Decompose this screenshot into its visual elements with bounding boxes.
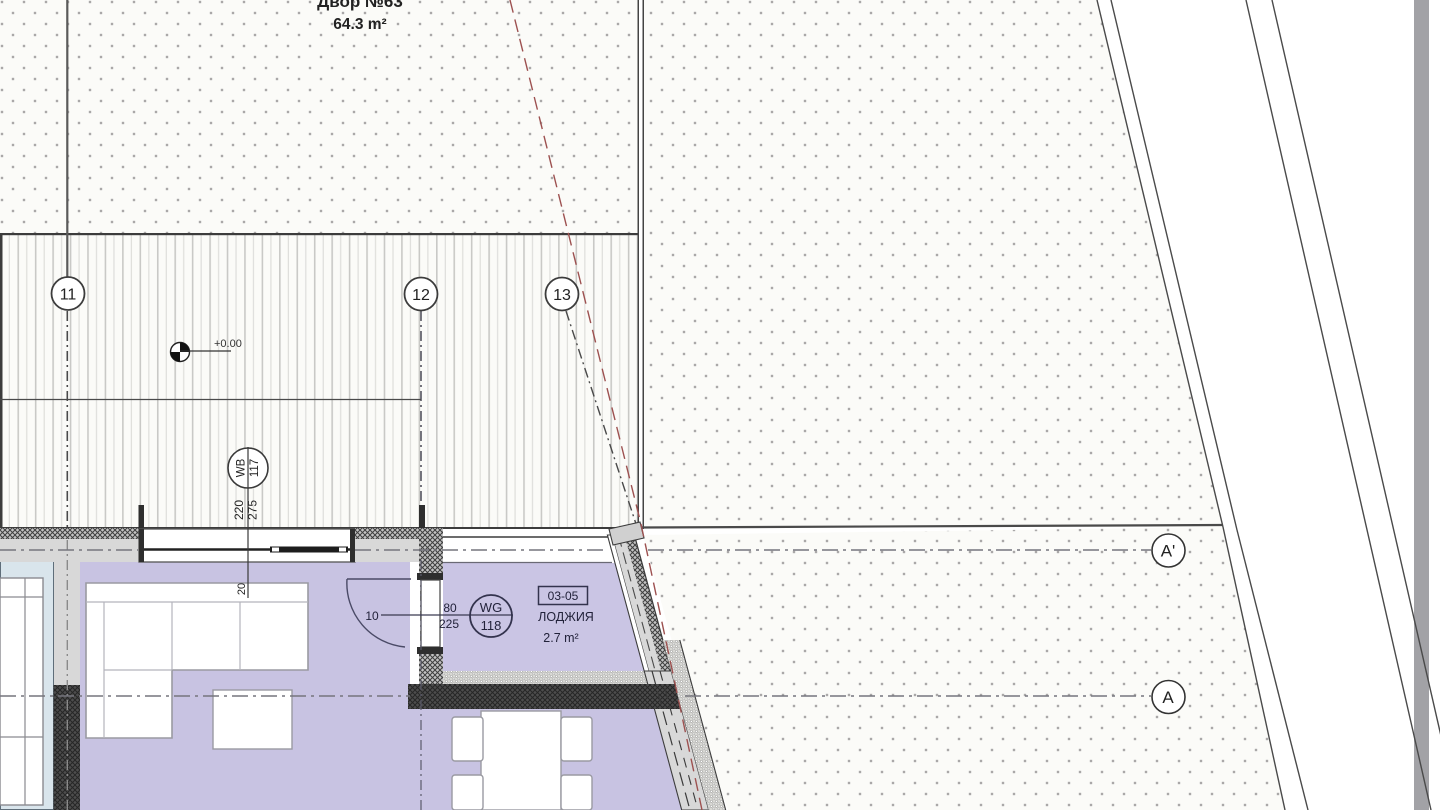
svg-text:13: 13 xyxy=(553,287,571,304)
svg-text:A': A' xyxy=(1161,542,1176,561)
svg-text:10: 10 xyxy=(365,609,379,623)
svg-text:A: A xyxy=(1162,688,1174,707)
svg-text:Двор №63: Двор №63 xyxy=(317,0,403,11)
svg-text:2.7 m²: 2.7 m² xyxy=(543,631,578,645)
svg-text:220: 220 xyxy=(232,500,246,520)
svg-text:WB: WB xyxy=(236,458,248,477)
svg-text:118: 118 xyxy=(481,618,502,633)
svg-text:20: 20 xyxy=(236,583,248,595)
svg-text:03-05: 03-05 xyxy=(548,589,579,603)
svg-text:80: 80 xyxy=(443,601,457,615)
svg-text:ЛОДЖИЯ: ЛОДЖИЯ xyxy=(538,610,594,624)
svg-text:64.3 m²: 64.3 m² xyxy=(333,16,386,33)
svg-text:WG: WG xyxy=(480,600,502,615)
svg-text:225: 225 xyxy=(439,617,459,631)
svg-text:117: 117 xyxy=(249,459,261,477)
svg-text:275: 275 xyxy=(246,500,260,520)
svg-text:12: 12 xyxy=(412,287,430,304)
svg-text:+0.00: +0.00 xyxy=(214,338,242,350)
svg-text:11: 11 xyxy=(60,287,77,304)
